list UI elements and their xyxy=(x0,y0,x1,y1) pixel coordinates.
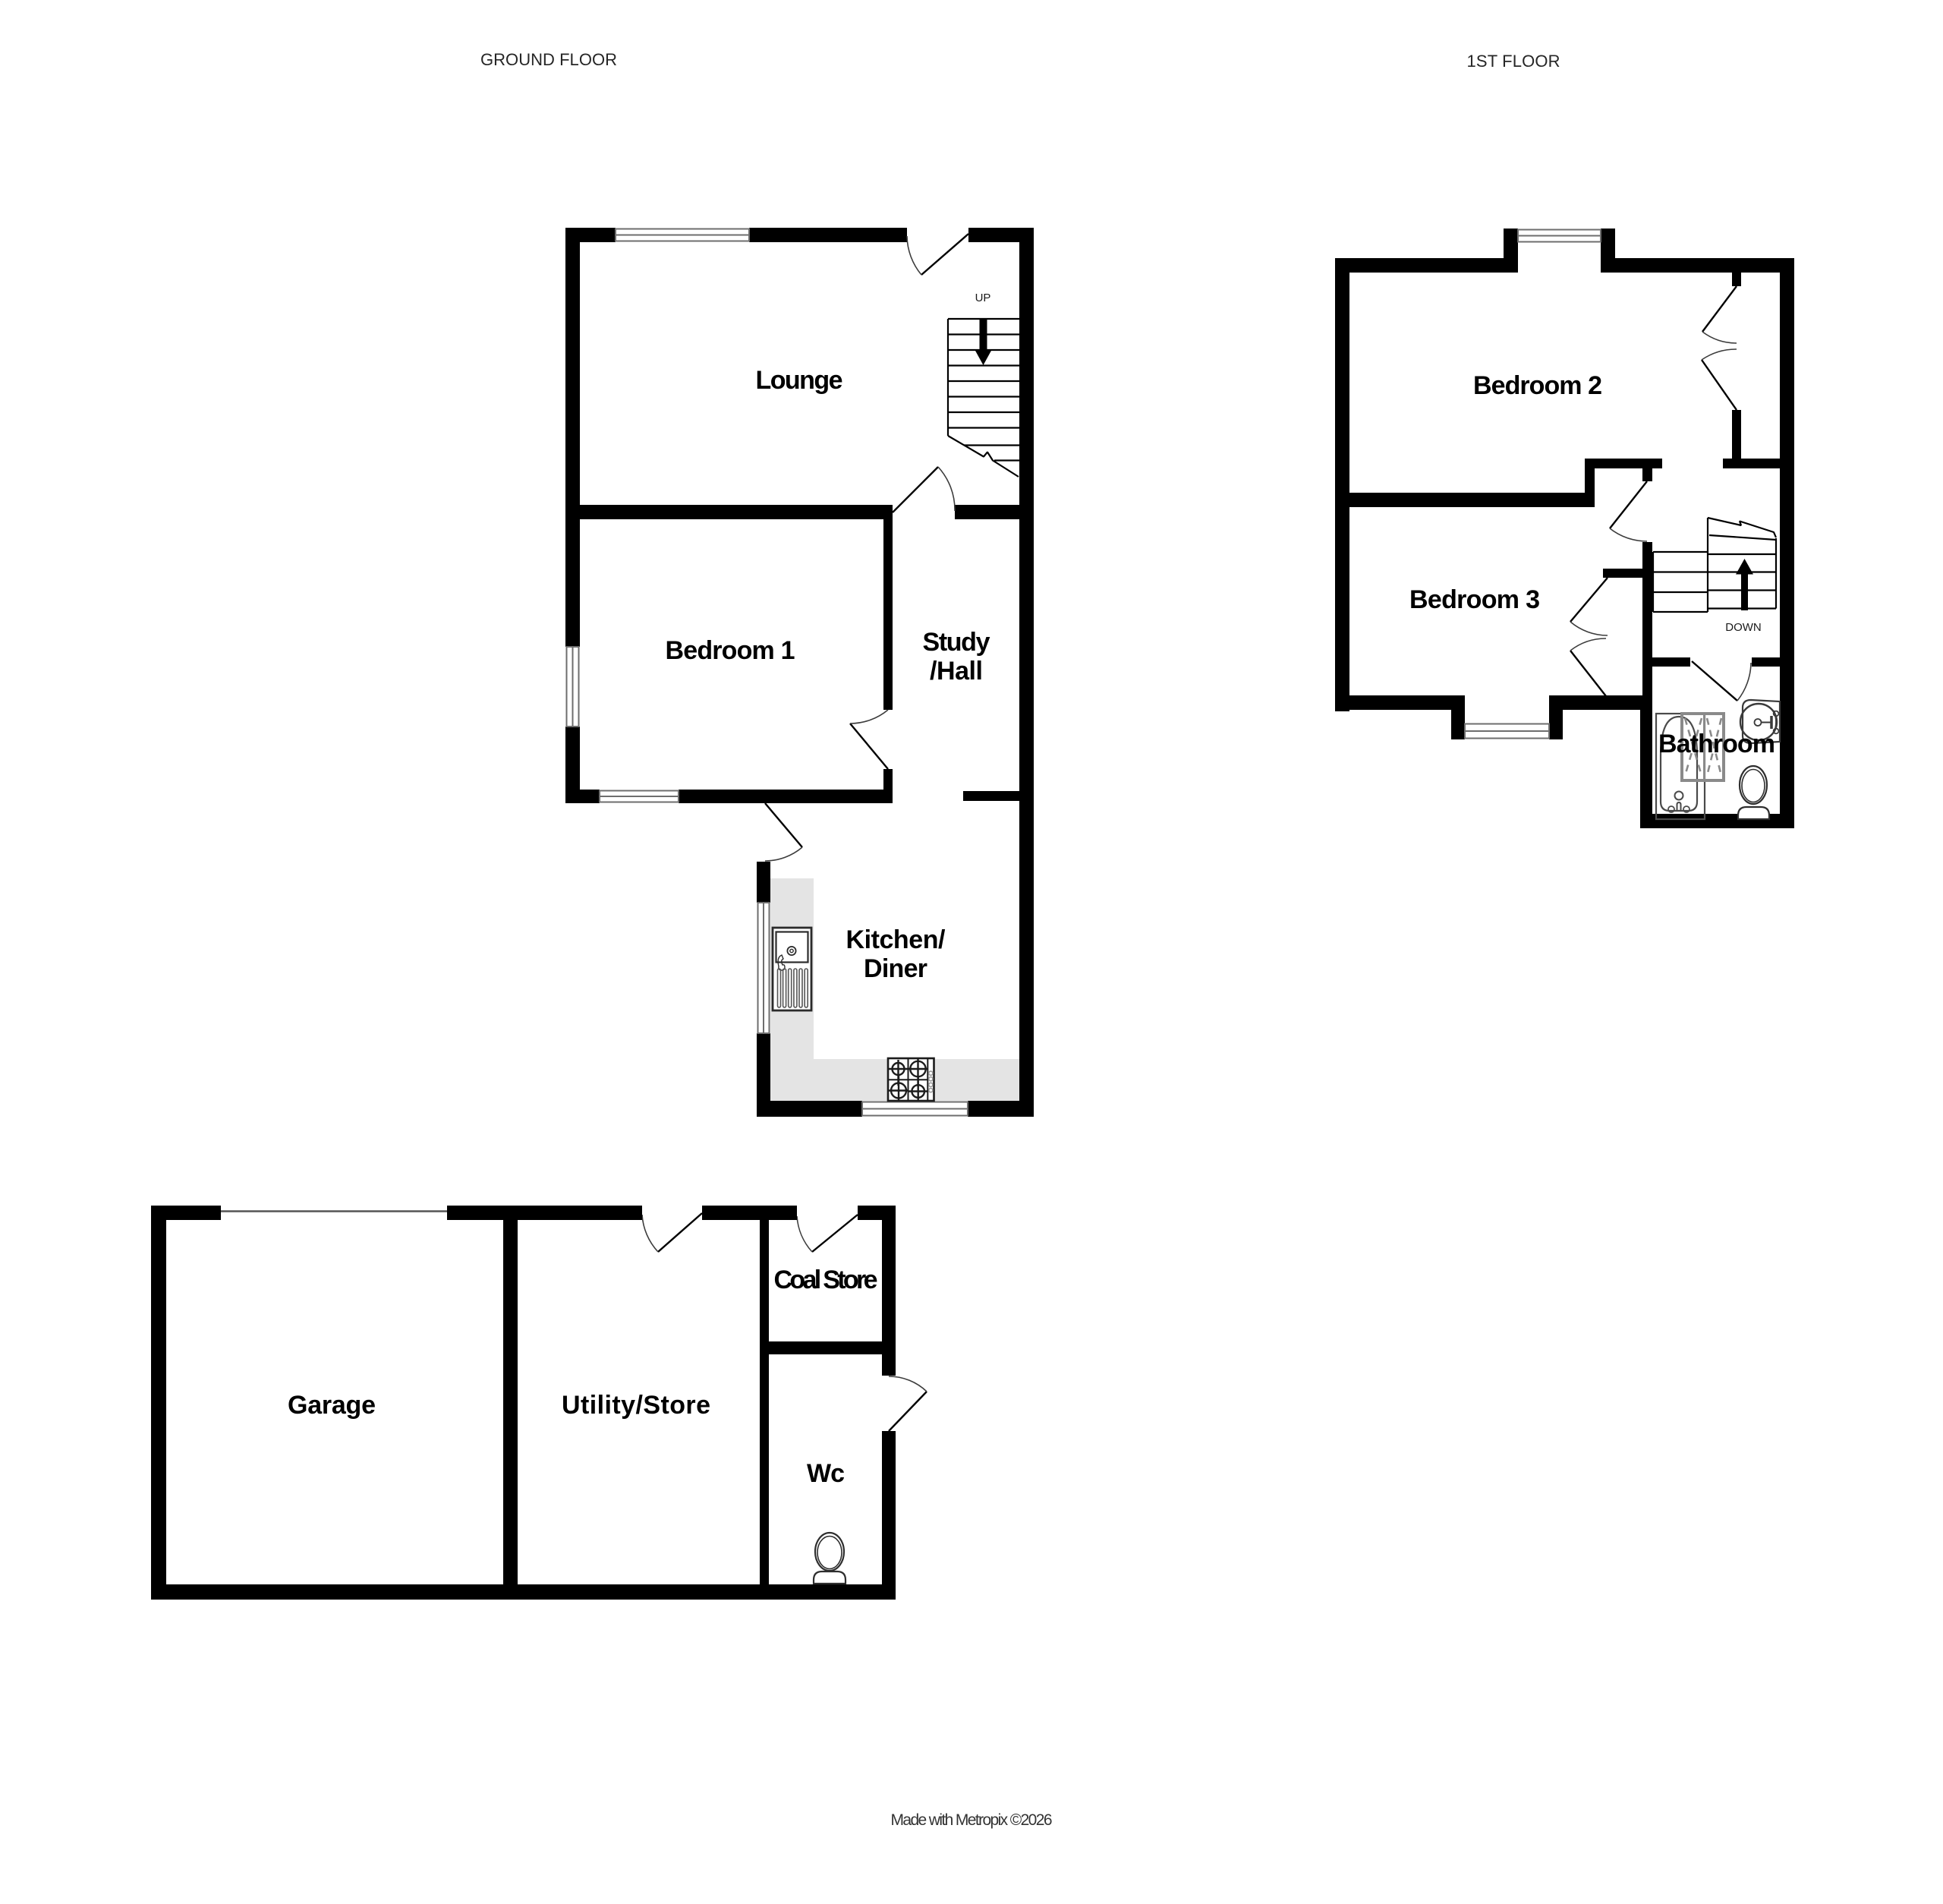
svg-text:Bedroom 2: Bedroom 2 xyxy=(1473,371,1602,400)
svg-text:GROUND FLOOR: GROUND FLOOR xyxy=(480,50,617,69)
svg-text:/Hall: /Hall xyxy=(930,657,983,686)
svg-text:Bathroom: Bathroom xyxy=(1658,730,1775,758)
svg-text:1ST FLOOR: 1ST FLOOR xyxy=(1467,52,1560,71)
svg-text:Made with Metropix ©2026: Made with Metropix ©2026 xyxy=(891,1811,1053,1829)
svg-text:Garage: Garage xyxy=(288,1391,376,1420)
svg-text:Lounge: Lounge xyxy=(756,366,843,395)
svg-text:Coal Store: Coal Store xyxy=(774,1266,878,1294)
svg-text:Wc: Wc xyxy=(807,1459,845,1488)
svg-text:DOWN: DOWN xyxy=(1725,621,1762,634)
svg-text:Bedroom 3: Bedroom 3 xyxy=(1409,585,1540,614)
svg-text:Diner: Diner xyxy=(864,954,927,983)
svg-text:UP: UP xyxy=(975,292,991,304)
svg-text:Utility/Store: Utility/Store xyxy=(562,1391,710,1420)
svg-text:Bedroom 1: Bedroom 1 xyxy=(666,636,795,665)
svg-text:Kitchen/: Kitchen/ xyxy=(846,925,946,954)
svg-text:Study: Study xyxy=(923,628,990,657)
